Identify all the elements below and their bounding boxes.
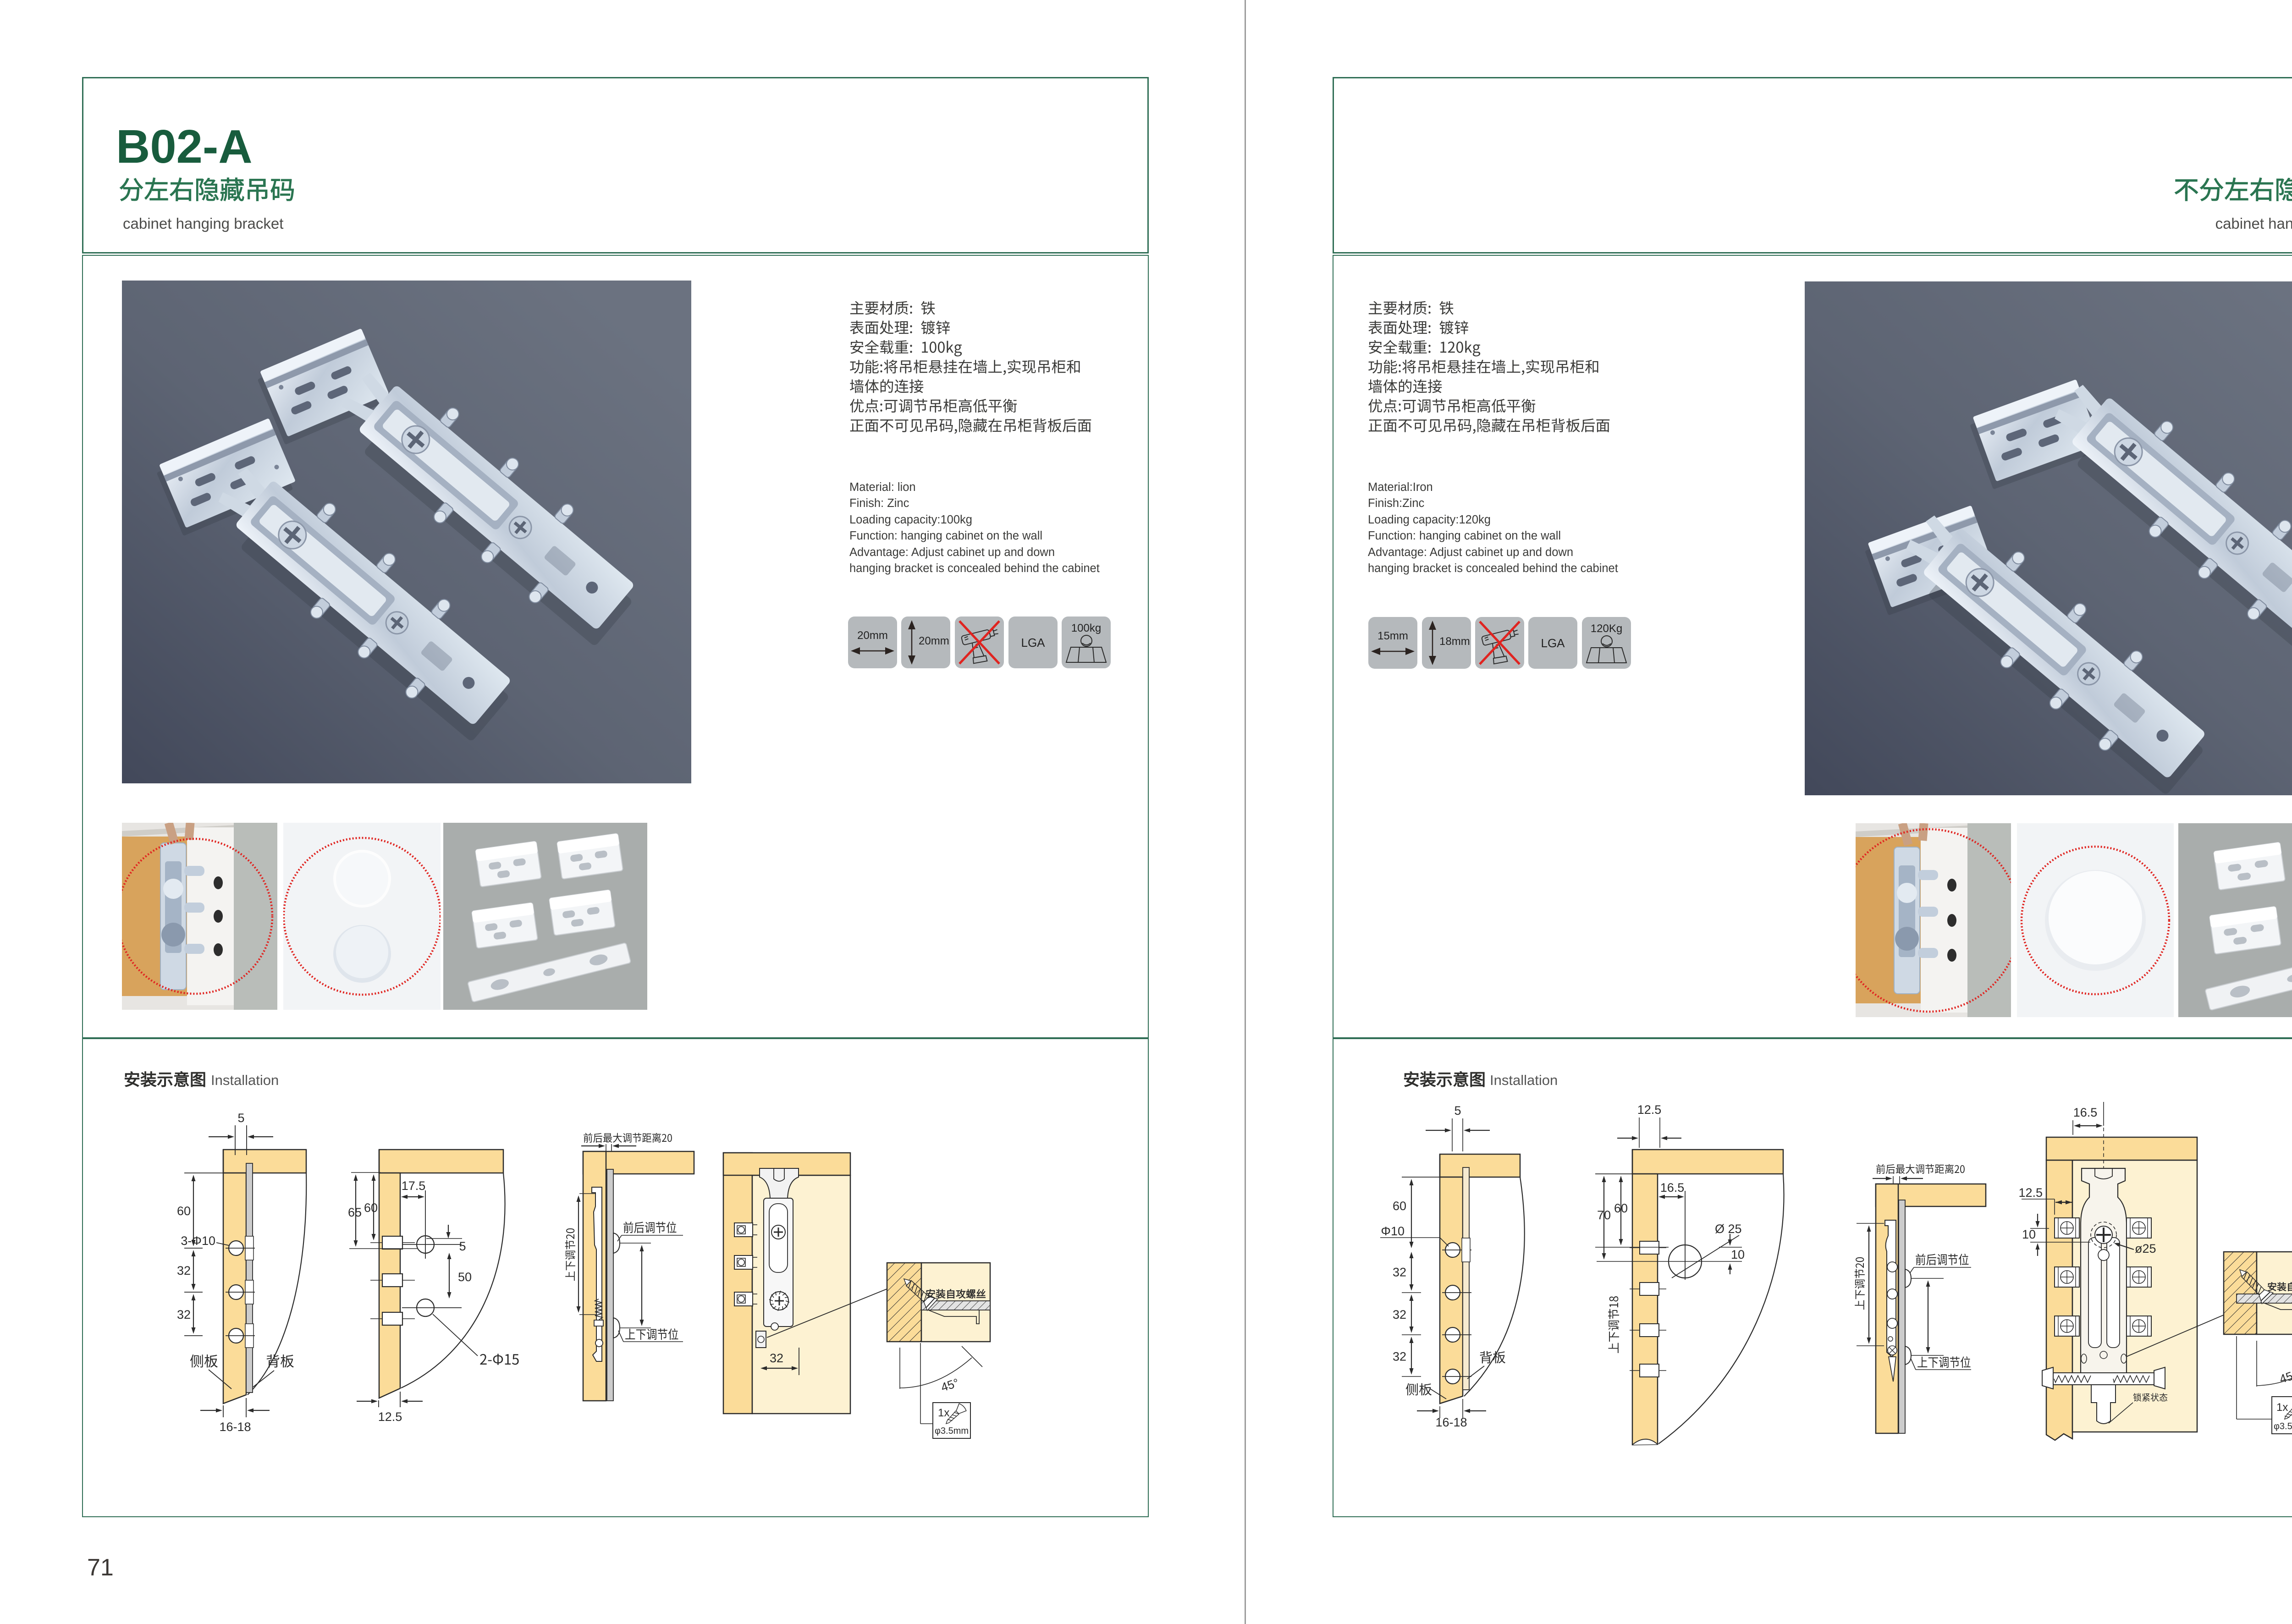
svg-text:12.5: 12.5 xyxy=(2018,1186,2043,1200)
svg-text:32: 32 xyxy=(1393,1308,1406,1321)
svg-text:45°: 45° xyxy=(2278,1367,2292,1386)
svg-text:16-18: 16-18 xyxy=(219,1420,251,1434)
svg-text:3-Φ10: 3-Φ10 xyxy=(181,1234,215,1248)
svg-text:φ3.5mm: φ3.5mm xyxy=(2274,1421,2292,1431)
svg-text:65: 65 xyxy=(348,1206,362,1219)
svg-text:32: 32 xyxy=(1393,1266,1406,1279)
svg-text:16.5: 16.5 xyxy=(1660,1181,1685,1195)
svg-text:5: 5 xyxy=(1454,1104,1461,1118)
svg-text:1x: 1x xyxy=(2276,1401,2288,1414)
svg-text:Φ10: Φ10 xyxy=(1381,1224,1405,1238)
svg-text:60: 60 xyxy=(177,1204,191,1218)
svg-text:ø25: ø25 xyxy=(2135,1242,2156,1255)
svg-text:5: 5 xyxy=(237,1111,244,1125)
svg-text:φ3.5mm: φ3.5mm xyxy=(935,1426,969,1436)
svg-text:10: 10 xyxy=(2022,1228,2036,1241)
svg-text:32: 32 xyxy=(177,1308,191,1321)
svg-text:16-18: 16-18 xyxy=(1435,1415,1467,1429)
svg-text:Ø 25: Ø 25 xyxy=(1715,1222,1742,1236)
svg-text:5: 5 xyxy=(459,1239,466,1253)
svg-text:17.5: 17.5 xyxy=(402,1179,426,1193)
svg-text:1x: 1x xyxy=(938,1407,949,1419)
svg-text:70: 70 xyxy=(1597,1208,1611,1222)
svg-text:32: 32 xyxy=(1393,1350,1406,1364)
svg-text:12.5: 12.5 xyxy=(378,1410,402,1424)
svg-text:10: 10 xyxy=(1731,1248,1745,1261)
svg-text:60: 60 xyxy=(1393,1199,1406,1213)
svg-text:60: 60 xyxy=(1614,1201,1628,1215)
svg-text:60: 60 xyxy=(364,1201,378,1215)
svg-text:45°: 45° xyxy=(939,1376,961,1394)
svg-text:50: 50 xyxy=(458,1270,472,1284)
svg-text:12.5: 12.5 xyxy=(1637,1103,1662,1117)
svg-text:32: 32 xyxy=(770,1351,783,1365)
svg-text:32: 32 xyxy=(177,1264,191,1277)
svg-text:16.5: 16.5 xyxy=(2073,1106,2098,1119)
